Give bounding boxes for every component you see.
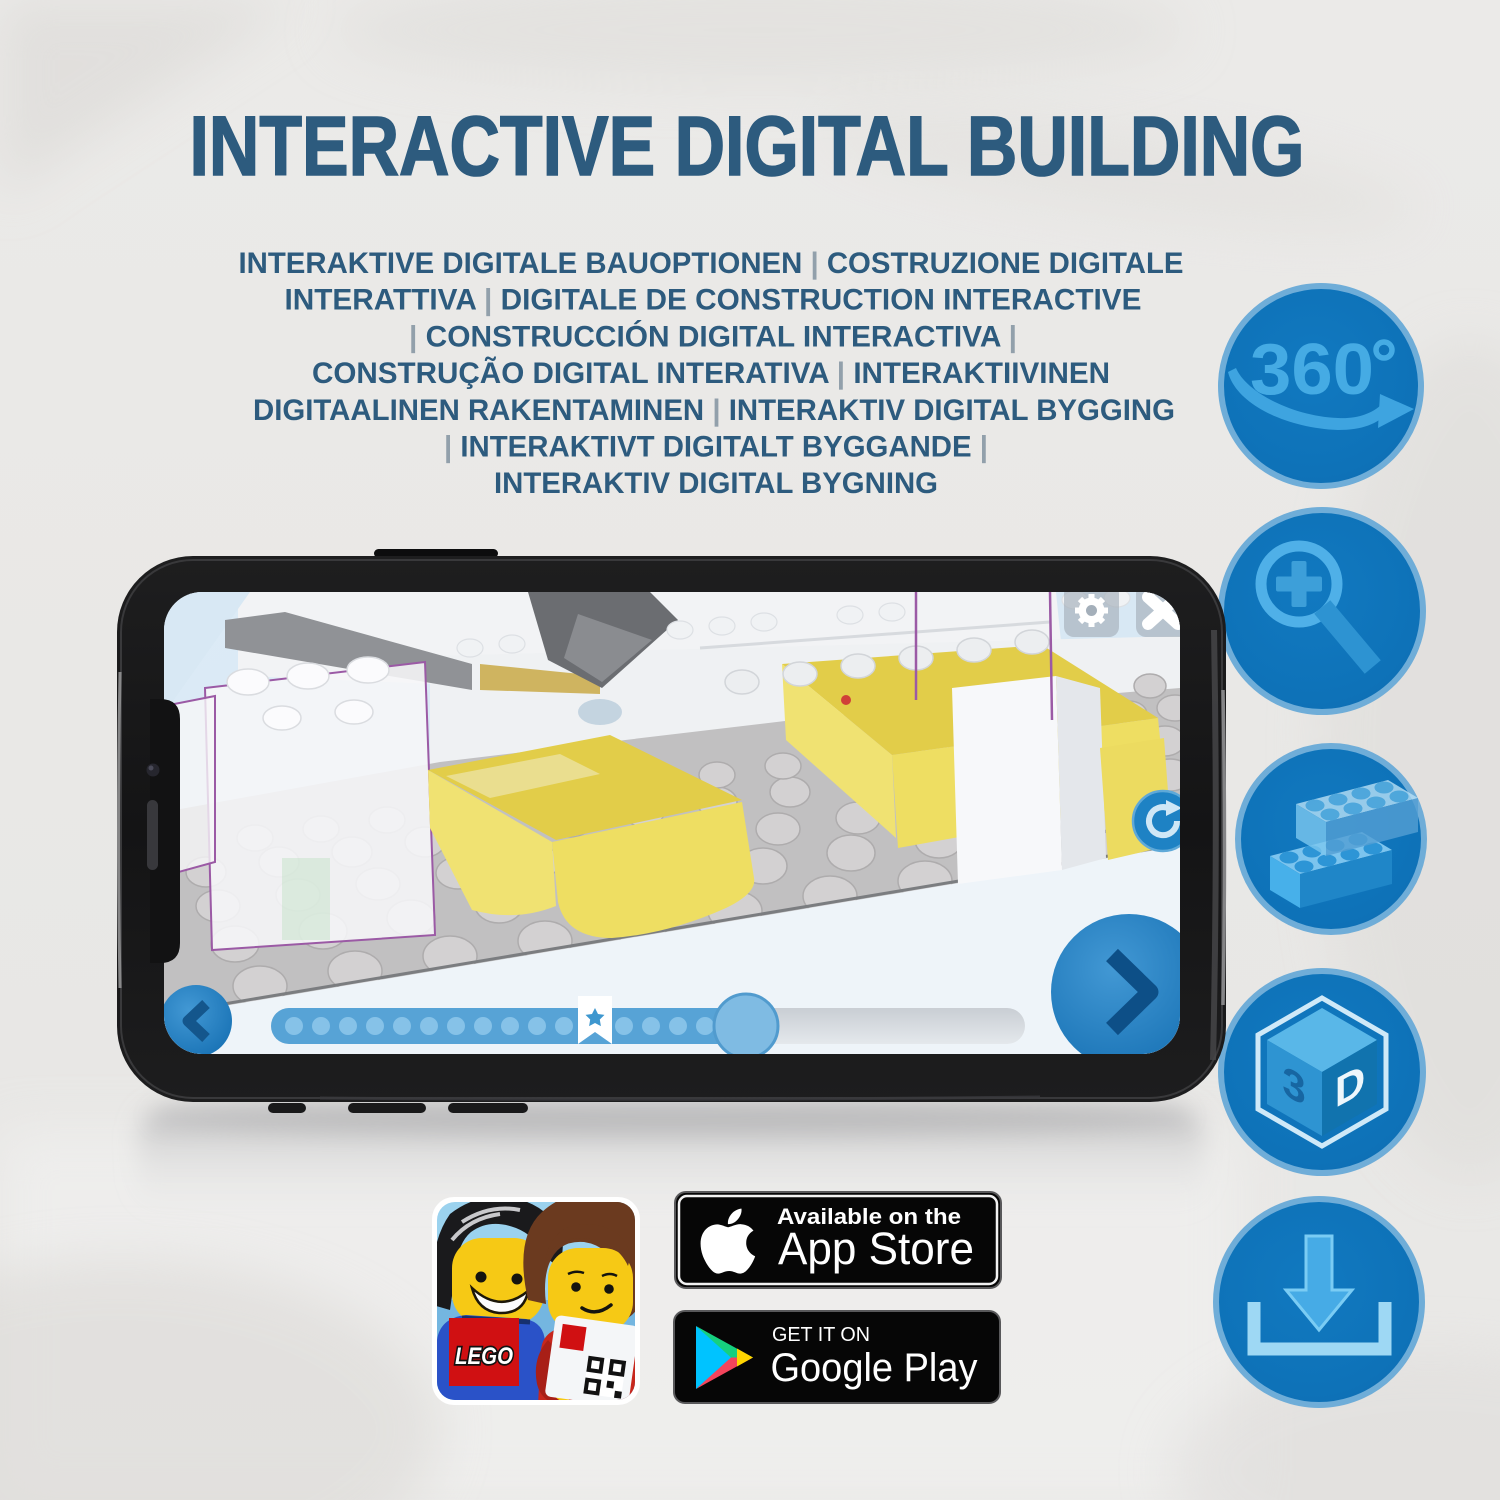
svg-text:DIGITAALINEN RAKENTAMINEN | IN: DIGITAALINEN RAKENTAMINEN | INTERAKTIV D… xyxy=(253,394,1175,427)
svg-text:LEGO: LEGO xyxy=(455,1343,513,1370)
svg-text:GET IT ON: GET IT ON xyxy=(772,1324,870,1346)
svg-text:CONSTRUÇÃO DIGITAL INTERATIVA: CONSTRUÇÃO DIGITAL INTERATIVA | INTERAKT… xyxy=(312,356,1110,390)
svg-text:INTERAKTIV DIGITAL BYGNING: INTERAKTIV DIGITAL BYGNING xyxy=(494,467,938,500)
svg-text:360: 360 xyxy=(1250,330,1374,410)
svg-text:INTERACTIVE DIGITAL BUILDING: INTERACTIVE DIGITAL BUILDING xyxy=(190,99,1305,193)
svg-text:App Store: App Store xyxy=(778,1223,974,1274)
svg-text:INTERAKTIVE DIGITALE BAUOPTION: INTERAKTIVE DIGITALE BAUOPTIONEN | COSTR… xyxy=(239,247,1184,280)
svg-text:| INTERAKTIVT DIGITALT BYGGAND: | INTERAKTIVT DIGITALT BYGGANDE | xyxy=(444,431,988,464)
svg-text:Google Play: Google Play xyxy=(771,1346,978,1390)
svg-text:INTERATTIVA | DIGITALE DE CONS: INTERATTIVA | DIGITALE DE CONSTRUCTION I… xyxy=(285,284,1142,317)
svg-text:| CONSTRUCCIÓN DIGITAL INTERAC: | CONSTRUCCIÓN DIGITAL INTERACTIVA | xyxy=(409,319,1017,353)
